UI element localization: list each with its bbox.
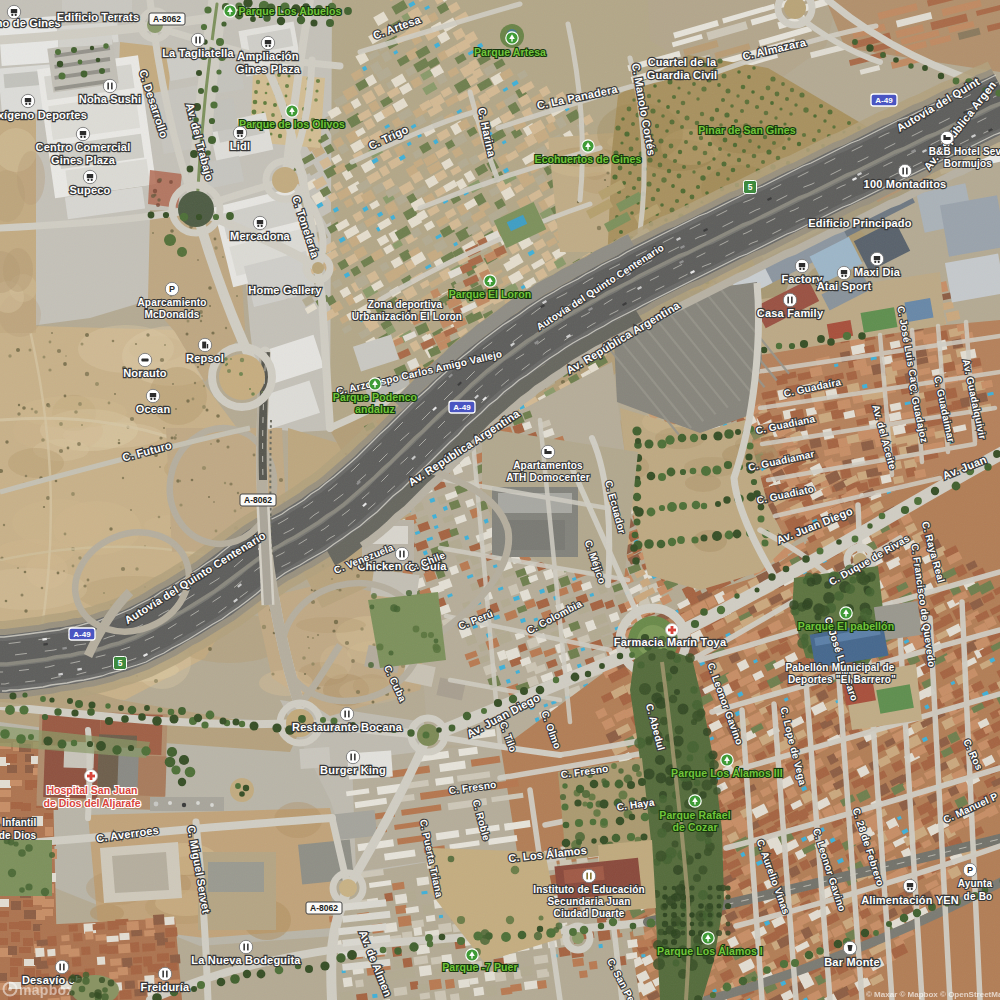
svg-text:Zona deportiva: Zona deportiva: [368, 299, 443, 310]
svg-text:A-8062: A-8062: [153, 14, 181, 24]
svg-text:A-49: A-49: [453, 403, 471, 412]
svg-text:Bormujos: Bormujos: [944, 158, 993, 169]
svg-text:A-8062: A-8062: [310, 903, 338, 913]
svg-text:P: P: [169, 284, 175, 294]
svg-text:Repsol: Repsol: [186, 352, 224, 364]
svg-text:P: P: [967, 865, 973, 875]
svg-text:A-49: A-49: [73, 630, 91, 639]
svg-text:McDonalds: McDonalds: [144, 309, 199, 320]
svg-text:Supeco: Supeco: [70, 184, 111, 196]
svg-text:Parque Rafael: Parque Rafael: [659, 809, 730, 821]
svg-text:Parque Los Abuelos: Parque Los Abuelos: [239, 5, 342, 17]
svg-text:Urbanización El Loron: Urbanización El Loron: [352, 311, 462, 322]
svg-text:Maxi Dia: Maxi Dia: [854, 266, 901, 278]
svg-text:Guardia Civil: Guardia Civil: [647, 69, 717, 81]
svg-text:Edificio Terrats: Edificio Terrats: [57, 11, 139, 23]
svg-text:lino de Gines: lino de Gines: [0, 17, 61, 29]
svg-text:Casa Family: Casa Family: [757, 307, 824, 319]
svg-text:Alimentación YEN: Alimentación YEN: [861, 894, 959, 906]
svg-text:Lidl: Lidl: [230, 140, 250, 152]
svg-text:Edificio Principado: Edificio Principado: [808, 217, 912, 229]
svg-text:Ecohuertos de Gines: Ecohuertos de Gines: [535, 153, 642, 165]
svg-text:Deportes "El Barrero": Deportes "El Barrero": [788, 674, 896, 685]
svg-text:5: 5: [748, 182, 753, 192]
svg-text:Ampliación: Ampliación: [237, 50, 298, 62]
svg-text:5: 5: [118, 658, 123, 668]
svg-text:Gines Plaza: Gines Plaza: [51, 154, 116, 166]
svg-text:Hospital San Juan: Hospital San Juan: [46, 784, 137, 796]
svg-text:a Infantil: a Infantil: [0, 817, 37, 828]
svg-text:ATH Domocenter: ATH Domocenter: [506, 472, 590, 483]
svg-text:Restaurante Bocana: Restaurante Bocana: [292, 721, 403, 733]
svg-text:Freiduría: Freiduría: [141, 981, 191, 993]
svg-text:Parque El pabellón: Parque El pabellón: [798, 620, 894, 632]
svg-text:A-49: A-49: [875, 96, 893, 105]
svg-text:A-8062: A-8062: [244, 495, 272, 505]
svg-text:Mercadona: Mercadona: [230, 230, 291, 242]
svg-text:Instituto de Educación: Instituto de Educación: [533, 884, 645, 895]
svg-text:Secundaria Juan: Secundaria Juan: [547, 896, 630, 907]
svg-text:Burger King: Burger King: [320, 764, 386, 776]
svg-text:Centro Comercial: Centro Comercial: [36, 141, 131, 153]
svg-text:Pabellón Municipal de: Pabellón Municipal de: [785, 662, 894, 673]
svg-text:100 Montaditos: 100 Montaditos: [864, 178, 947, 190]
svg-text:B&B Hotel Sev: B&B Hotel Sev: [929, 146, 1000, 157]
svg-text:Norauto: Norauto: [123, 367, 167, 379]
svg-text:Apartamentos: Apartamentos: [513, 460, 583, 471]
svg-text:andaluz: andaluz: [355, 403, 395, 415]
svg-text:La Tagliatella: La Tagliatella: [162, 47, 234, 59]
svg-text:Aparcamiento: Aparcamiento: [137, 297, 206, 308]
svg-text:La Nueva Bodeguita: La Nueva Bodeguita: [191, 954, 301, 966]
svg-text:Atai Sport: Atai Sport: [817, 280, 872, 292]
svg-text:Ayunta: Ayunta: [958, 878, 993, 889]
svg-text:Parque Podenco: Parque Podenco: [333, 391, 417, 403]
svg-text:Bar Monte: Bar Monte: [824, 956, 880, 968]
svg-text:Parque -7 Puer: Parque -7 Puer: [442, 961, 518, 973]
svg-text:Cuartel de la: Cuartel de la: [648, 56, 717, 68]
svg-text:an de Dios: an de Dios: [0, 830, 37, 841]
svg-text:Parque Los Álamos III: Parque Los Álamos III: [671, 767, 783, 779]
svg-text:Ciudad Duarte: Ciudad Duarte: [554, 908, 625, 919]
svg-text:Home Gallery: Home Gallery: [248, 284, 322, 296]
svg-text:Parque Artesa: Parque Artesa: [474, 46, 546, 58]
svg-text:© Maxar © Mapbox © OpenStreetM: © Maxar © Mapbox © OpenStreetMap Imp: [866, 990, 1000, 999]
svg-text:Parque de los Olivos: Parque de los Olivos: [239, 118, 345, 130]
svg-text:Parque El Loron: Parque El Loron: [449, 288, 532, 300]
svg-text:Farmacia Marín Toya: Farmacia Marín Toya: [614, 636, 727, 648]
svg-text:de Cozar: de Cozar: [672, 821, 717, 833]
svg-text:Pinar de San Gines: Pinar de San Gines: [698, 124, 796, 136]
svg-text:Parque Los Álamos I: Parque Los Álamos I: [657, 945, 763, 957]
svg-text:Ocean: Ocean: [136, 403, 171, 415]
svg-text:Gines Plaza: Gines Plaza: [236, 63, 301, 75]
svg-text:de Dios del Aljarafe: de Dios del Aljarafe: [43, 797, 140, 809]
svg-text:de Bo: de Bo: [964, 891, 993, 902]
svg-text:Noha Sushi: Noha Sushi: [79, 93, 142, 105]
svg-text:Oxígeno Deportes: Oxígeno Deportes: [0, 109, 87, 121]
svg-text:mapbox: mapbox: [19, 982, 74, 998]
